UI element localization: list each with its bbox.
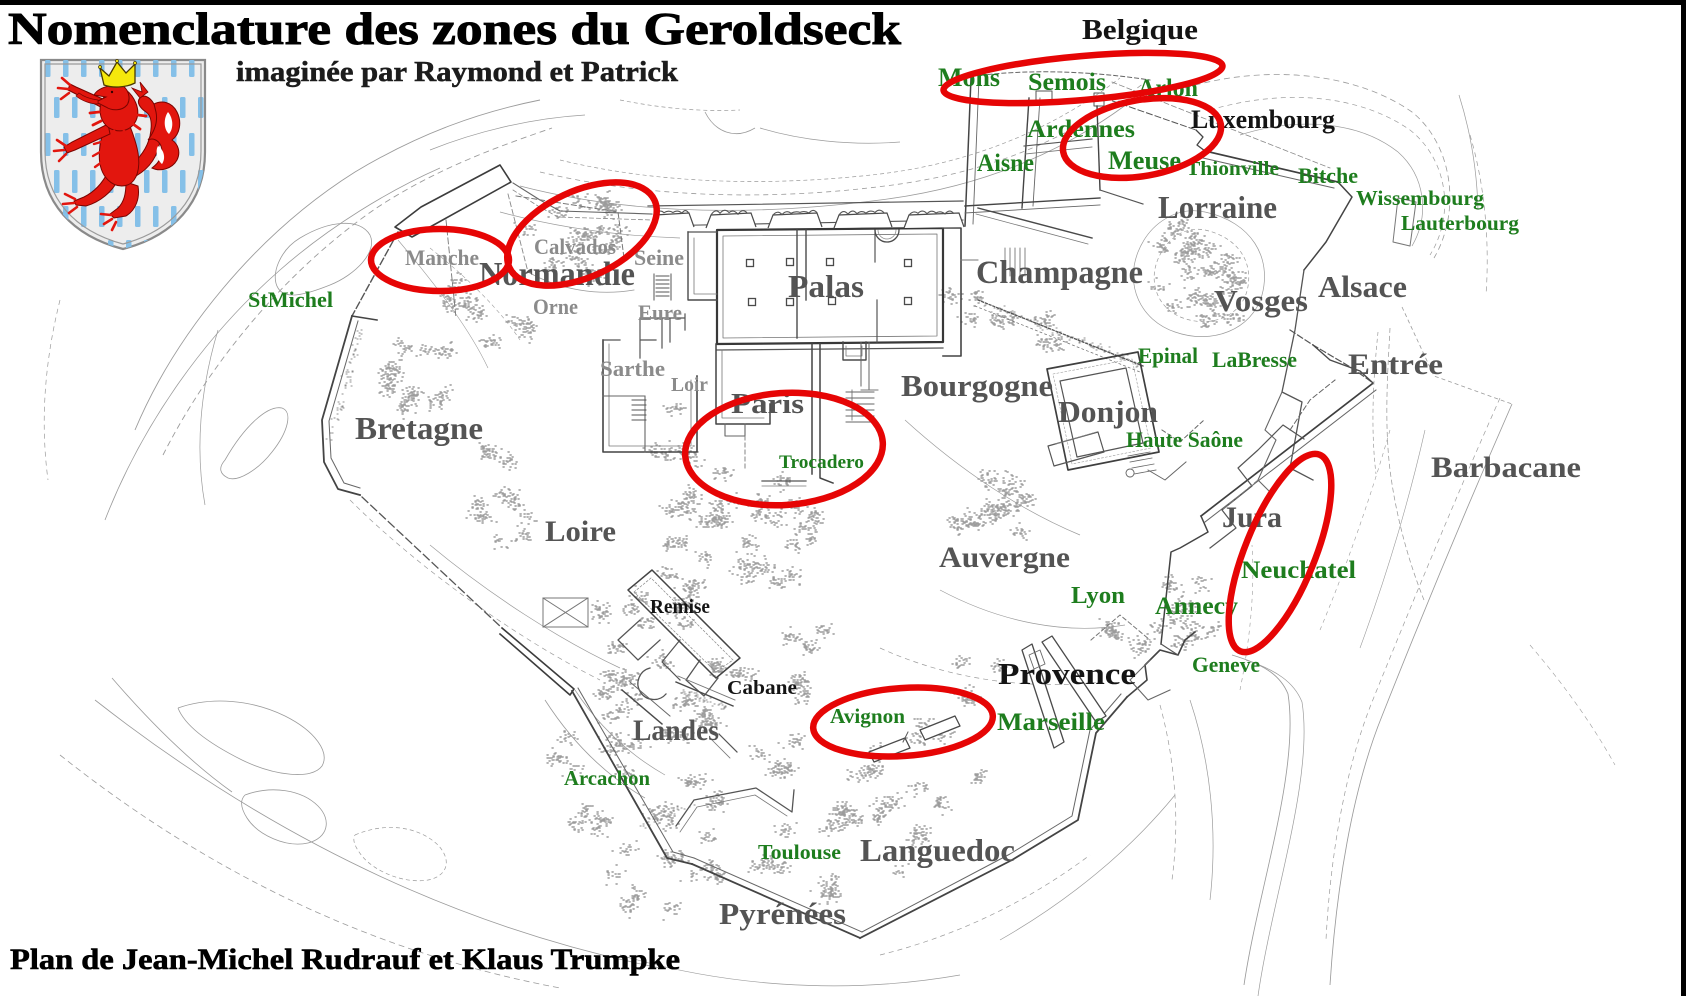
svg-text:Avignon: Avignon (830, 704, 905, 728)
svg-text:Aisne: Aisne (977, 150, 1034, 177)
svg-text:Belgique: Belgique (1082, 15, 1198, 46)
svg-text:Provence: Provence (998, 656, 1136, 691)
svg-text:Languedoc: Languedoc (860, 832, 1015, 868)
svg-text:Manche: Manche (405, 245, 479, 270)
svg-text:Landes: Landes (633, 714, 719, 747)
svg-text:Alsace: Alsace (1318, 269, 1407, 304)
svg-text:Semois: Semois (1028, 69, 1106, 96)
svg-text:Geneve: Geneve (1192, 652, 1260, 677)
svg-text:Orne: Orne (533, 294, 578, 319)
svg-text:Auvergne: Auvergne (939, 541, 1070, 574)
svg-text:Cabane: Cabane (727, 677, 797, 699)
svg-text:Barbacane: Barbacane (1431, 451, 1581, 484)
svg-text:Epinal: Epinal (1138, 343, 1198, 368)
svg-text:Loire: Loire (545, 515, 616, 548)
svg-text:LaBresse: LaBresse (1212, 347, 1297, 372)
svg-text:Palas: Palas (788, 268, 864, 304)
svg-text:Vosges: Vosges (1214, 283, 1308, 318)
svg-text:Toulouse: Toulouse (758, 840, 841, 864)
svg-text:Sarthe: Sarthe (600, 356, 665, 381)
svg-text:Marseille: Marseille (997, 709, 1105, 736)
svg-text:Entrée: Entrée (1348, 348, 1443, 381)
svg-text:Wissembourg: Wissembourg (1356, 186, 1485, 210)
svg-text:Calvados: Calvados (534, 234, 616, 259)
svg-text:Remise: Remise (650, 596, 710, 618)
svg-text:Seine: Seine (634, 245, 684, 270)
svg-text:Arcachon: Arcachon (564, 766, 650, 790)
svg-text:Thionville: Thionville (1186, 158, 1279, 180)
svg-text:Nomenclature des zones du Gero: Nomenclature des zones du Geroldseck (8, 4, 901, 54)
svg-text:Lyon: Lyon (1071, 583, 1125, 609)
svg-text:Lorraine: Lorraine (1158, 189, 1277, 225)
svg-text:Eure: Eure (638, 300, 682, 325)
svg-text:Donjon: Donjon (1058, 394, 1158, 429)
svg-text:Pyrénées: Pyrénées (719, 896, 846, 931)
svg-text:Neuchatel: Neuchatel (1241, 557, 1356, 584)
svg-text:Bourgogne: Bourgogne (901, 368, 1053, 403)
svg-text:StMichel: StMichel (248, 287, 333, 312)
svg-text:Haute Saône: Haute Saône (1126, 427, 1243, 452)
svg-text:Lauterbourg: Lauterbourg (1401, 211, 1520, 235)
svg-text:Bretagne: Bretagne (355, 410, 483, 446)
svg-text:Plan de Jean-Michel Rudrauf et: Plan de Jean-Michel Rudrauf et Klaus Tru… (10, 943, 680, 976)
svg-text:Trocadero: Trocadero (779, 452, 864, 473)
svg-text:Champagne: Champagne (976, 255, 1143, 291)
svg-text:imaginée par Raymond et Patric: imaginée par Raymond et Patrick (236, 56, 679, 88)
svg-text:Bitche: Bitche (1298, 163, 1358, 188)
svg-text:Loir: Loir (671, 374, 708, 396)
